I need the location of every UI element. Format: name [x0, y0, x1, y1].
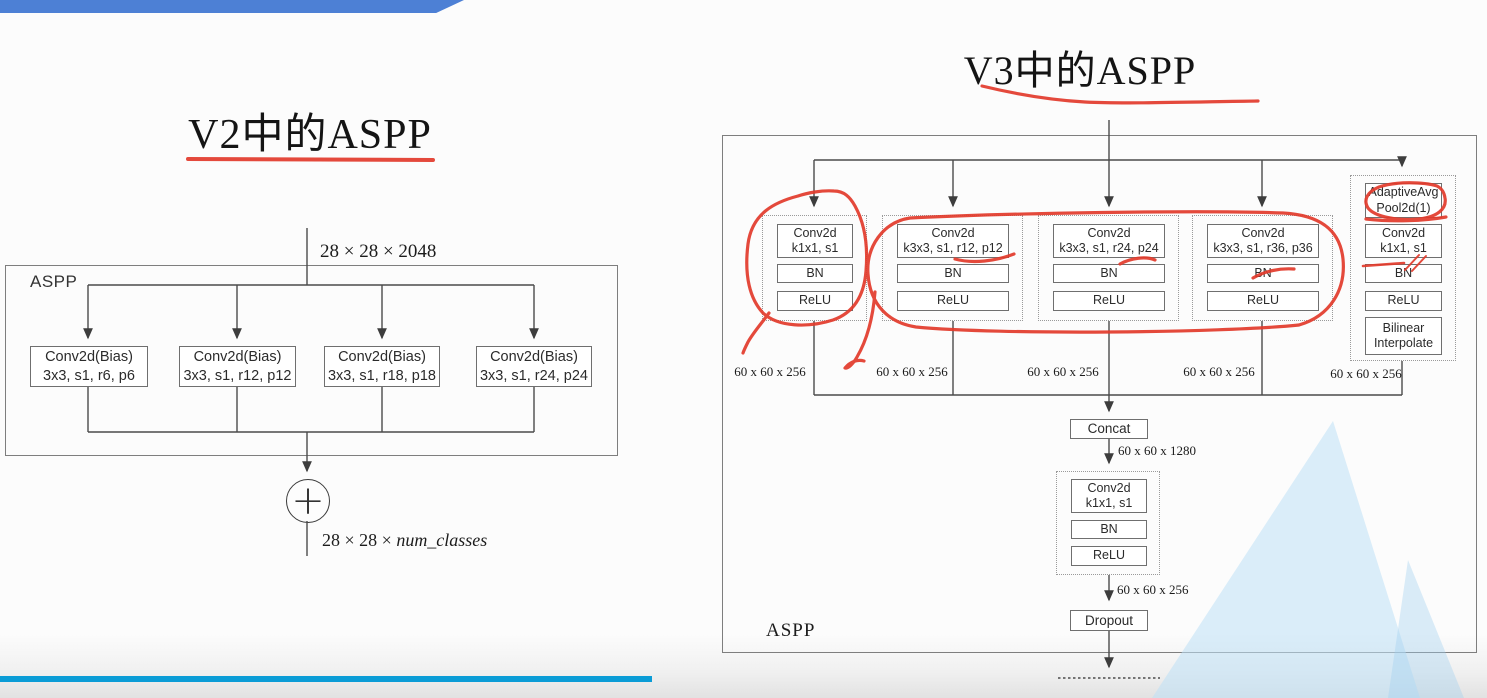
v3-b3-bn-label: BN: [1054, 266, 1164, 282]
v2-conv-branch-3: Conv2d(Bias) 3x3, s1, r18, p18: [324, 346, 440, 387]
v3-dropout-node: Dropout: [1070, 610, 1148, 631]
v3-dropout-label: Dropout: [1071, 613, 1147, 629]
v3-branch2-bn: BN: [897, 264, 1009, 283]
bottom-blue-bar: [0, 676, 652, 682]
v3-b3-conv-line2: k3x3, s1, r24, p24: [1054, 241, 1164, 257]
v3-projection-conv: Conv2d k1x1, s1: [1071, 479, 1147, 513]
v3-b4-relu-label: ReLU: [1208, 293, 1318, 309]
v3-b2-conv-line2: k3x3, s1, r12, p12: [898, 241, 1008, 257]
v3-branch3-bn: BN: [1053, 264, 1165, 283]
v2-output-dim-prefix: 28 × 28 ×: [322, 530, 396, 550]
v2-conv-branch-2: Conv2d(Bias) 3x3, s1, r12, p12: [179, 346, 296, 387]
v2-branch1-line1: Conv2d(Bias): [31, 348, 147, 367]
v3-branch1-conv: Conv2d k1x1, s1: [777, 224, 853, 258]
v3-projection-output-dim: 60 x 60 x 256: [1117, 582, 1189, 598]
v3-b2-conv-line1: Conv2d: [898, 226, 1008, 242]
v3-branch2-output-dim: 60 x 60 x 256: [857, 364, 967, 380]
v2-branch4-line2: 3x3, s1, r24, p24: [477, 367, 591, 386]
v3-proj-bn-label: BN: [1072, 522, 1146, 538]
v3-b5-bilinear-line2: Interpolate: [1366, 336, 1441, 352]
v3-projection-relu: ReLU: [1071, 546, 1147, 566]
v3-concat-label: Concat: [1071, 421, 1147, 437]
v3-projection-bn: BN: [1071, 520, 1147, 539]
v3-b5-pool-line2: Pool2d(1): [1366, 201, 1441, 217]
v3-branch5-conv: Conv2d k1x1, s1: [1365, 224, 1442, 258]
v3-branch3-relu: ReLU: [1053, 291, 1165, 311]
v3-b5-bn-label: BN: [1366, 266, 1441, 282]
v3-b1-conv-line1: Conv2d: [778, 226, 852, 242]
v3-branch5-relu: ReLU: [1365, 291, 1442, 311]
v3-branch4-bn: BN: [1207, 264, 1319, 283]
lecture-slide-canvas: V2中的ASPP 28 × 28 × 2048 ASPP Conv2d(Bias…: [0, 0, 1487, 698]
v2-elementwise-sum-node: +: [286, 479, 330, 523]
v3-b3-relu-label: ReLU: [1054, 293, 1164, 309]
v2-branch1-line2: 3x3, s1, r6, p6: [31, 367, 147, 386]
v2-aspp-module-label: ASPP: [30, 272, 77, 292]
v3-b5-relu-label: ReLU: [1366, 293, 1441, 309]
v3-b4-bn-label: BN: [1208, 266, 1318, 282]
v2-branch3-line2: 3x3, s1, r18, p18: [325, 367, 439, 386]
v3-proj-conv-line2: k1x1, s1: [1072, 496, 1146, 512]
v3-branch5-adaptive-pool: AdaptiveAvg Pool2d(1): [1365, 183, 1442, 218]
v3-b4-conv-line2: k3x3, s1, r36, p36: [1208, 241, 1318, 257]
v3-b4-conv-line1: Conv2d: [1208, 226, 1318, 242]
v3-branch3-conv: Conv2d k3x3, s1, r24, p24: [1053, 224, 1165, 258]
v2-branch4-line1: Conv2d(Bias): [477, 348, 591, 367]
v3-branch1-output-dim: 60 x 60 x 256: [715, 364, 825, 380]
v2-branch2-line1: Conv2d(Bias): [180, 348, 295, 367]
v3-branch1-relu: ReLU: [777, 291, 853, 311]
v3-b1-conv-line2: k1x1, s1: [778, 241, 852, 257]
v2-output-dim-label: 28 × 28 × num_classes: [322, 530, 487, 551]
v2-output-dim-variable: num_classes: [396, 530, 487, 550]
v3-proj-relu-label: ReLU: [1072, 548, 1146, 564]
v3-branch5-bn: BN: [1365, 264, 1442, 283]
v2-conv-branch-4: Conv2d(Bias) 3x3, s1, r24, p24: [476, 346, 592, 387]
v3-aspp-module-label: ASPP: [766, 620, 815, 642]
v2-title: V2中的ASPP: [160, 100, 460, 161]
v3-title: V3中的ASPP: [940, 38, 1220, 96]
v3-branch4-output-dim: 60 x 60 x 256: [1164, 364, 1274, 380]
v3-b1-bn-label: BN: [778, 266, 852, 282]
v3-concat-output-dim: 60 x 60 x 1280: [1118, 443, 1196, 459]
v2-branch3-line1: Conv2d(Bias): [325, 348, 439, 367]
v3-b3-conv-line1: Conv2d: [1054, 226, 1164, 242]
v3-b5-bilinear-line1: Bilinear: [1366, 321, 1441, 337]
v3-branch4-conv: Conv2d k3x3, s1, r36, p36: [1207, 224, 1319, 258]
v3-b5-conv-line1: Conv2d: [1366, 226, 1441, 242]
v3-branch2-relu: ReLU: [897, 291, 1009, 311]
v3-concat-node: Concat: [1070, 419, 1148, 439]
v2-branch2-line2: 3x3, s1, r12, p12: [180, 367, 295, 386]
v3-branch3-output-dim: 60 x 60 x 256: [1008, 364, 1118, 380]
v3-b1-relu-label: ReLU: [778, 293, 852, 309]
plus-icon: +: [291, 481, 325, 521]
v3-proj-conv-line1: Conv2d: [1072, 481, 1146, 497]
v3-branch5-bilinear: Bilinear Interpolate: [1365, 317, 1442, 355]
v3-b2-relu-label: ReLU: [898, 293, 1008, 309]
v3-b2-bn-label: BN: [898, 266, 1008, 282]
v3-b5-conv-line2: k1x1, s1: [1366, 241, 1441, 257]
v3-branch5-output-dim: 60 x 60 x 256: [1311, 366, 1421, 382]
top-blue-banner: [0, 0, 464, 13]
v3-b5-pool-line1: AdaptiveAvg: [1366, 185, 1441, 201]
v3-branch1-bn: BN: [777, 264, 853, 283]
v2-input-dim-label: 28 × 28 × 2048: [320, 241, 436, 263]
v3-branch2-conv: Conv2d k3x3, s1, r12, p12: [897, 224, 1009, 258]
v3-branch4-relu: ReLU: [1207, 291, 1319, 311]
v2-conv-branch-1: Conv2d(Bias) 3x3, s1, r6, p6: [30, 346, 148, 387]
